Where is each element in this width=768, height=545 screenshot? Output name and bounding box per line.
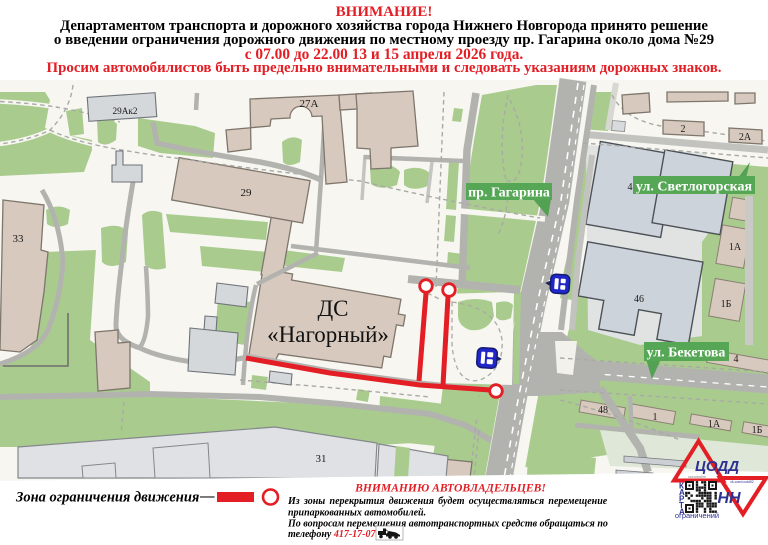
svg-text:46: 46 — [634, 294, 644, 305]
svg-text:телефону 417-17-07: телефону 417-17-07 — [288, 529, 376, 540]
svg-text:НН: НН — [717, 490, 741, 507]
svg-text:пр. Гагарина: пр. Гагарина — [468, 186, 550, 201]
svg-text:1: 1 — [653, 412, 658, 423]
svg-text:ул. Светлогорская: ул. Светлогорская — [636, 180, 753, 195]
svg-text:1А: 1А — [708, 419, 721, 430]
svg-text:27А: 27А — [300, 98, 319, 110]
svg-text:4: 4 — [734, 354, 739, 365]
svg-text:ДС: ДС — [317, 296, 348, 321]
svg-text:29: 29 — [241, 187, 253, 199]
svg-text:ЦОДД: ЦОДД — [695, 458, 739, 475]
svg-text:1Б: 1Б — [752, 425, 763, 436]
svg-text:Из зоны перекрытия движения бу: Из зоны перекрытия движения будет осущес… — [287, 496, 608, 507]
svg-text:48: 48 — [598, 405, 608, 416]
svg-text:«Нагорный»: «Нагорный» — [267, 322, 389, 347]
svg-text:1А: 1А — [729, 242, 742, 253]
svg-text:ул. Бекетова: ул. Бекетова — [647, 346, 726, 361]
svg-text:ВНИМАНИЮ АВТОВЛАДЕЛЬЦЕВ!: ВНИМАНИЮ АВТОВЛАДЕЛЬЦЕВ! — [354, 482, 546, 495]
svg-text:4: 4 — [628, 182, 633, 193]
svg-text:31: 31 — [316, 453, 327, 465]
svg-text:скачивайте: скачивайте — [688, 475, 706, 479]
svg-text:2А: 2А — [739, 132, 752, 143]
svg-text:vk.com/codd52: vk.com/codd52 — [730, 480, 754, 484]
svg-text:2: 2 — [681, 124, 686, 135]
svg-text:1Б: 1Б — [721, 299, 732, 310]
svg-text:29Ак2: 29Ак2 — [113, 106, 138, 116]
svg-text:33: 33 — [13, 233, 25, 245]
svg-text:—: — — [199, 489, 215, 505]
svg-text:Зона ограничения движения: Зона ограничения движения — [15, 490, 199, 506]
svg-text:припаркованных автомобилей.: припаркованных автомобилей. — [288, 508, 426, 519]
